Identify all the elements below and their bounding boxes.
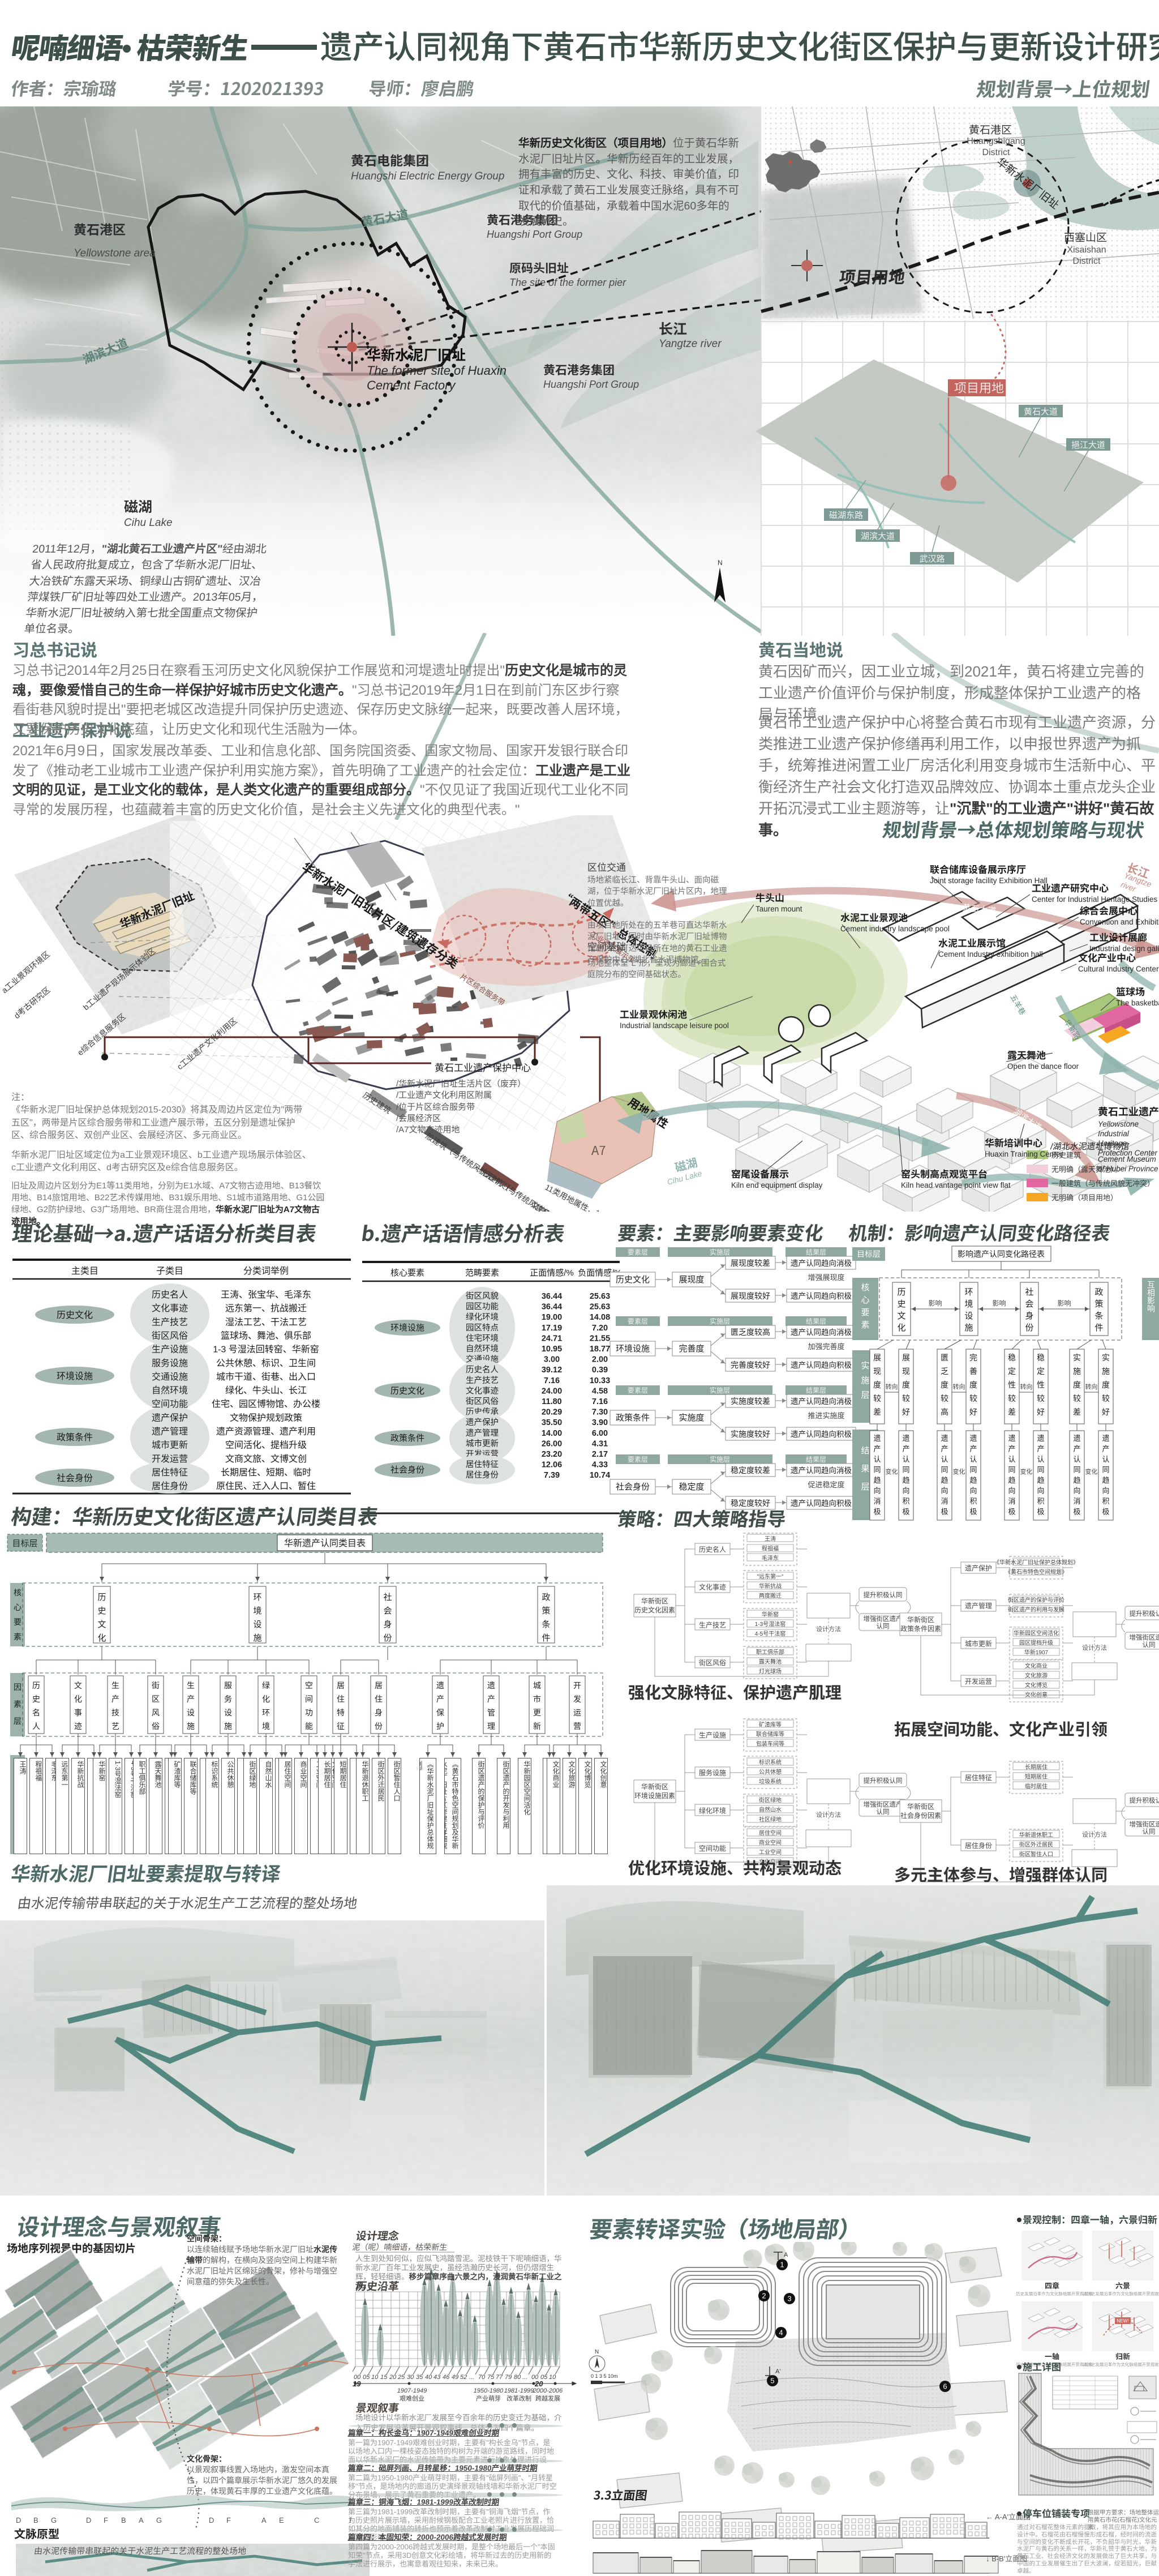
svg-text:实施度较好: 实施度较好 — [731, 1430, 770, 1439]
svg-text:史: 史 — [97, 1606, 106, 1616]
svg-text:艺: 艺 — [111, 1722, 119, 1731]
svg-text:迹: 迹 — [74, 1722, 82, 1731]
svg-text:遗: 遗 — [873, 1434, 881, 1443]
svg-text:心: 心 — [861, 1295, 869, 1305]
svg-text:遗产认同趋向积极: 遗产认同趋向积极 — [791, 1361, 852, 1370]
svg-text:2: 2 — [762, 2292, 766, 2300]
svg-text:城: 城 — [533, 1681, 541, 1690]
svg-text:影响: 影响 — [1057, 1299, 1071, 1307]
svg-text:《华新水泥厂旧址保护总体规划》: 《华新水泥厂旧址保护总体规划》 — [994, 1559, 1079, 1566]
svg-text:70: 70 — [478, 2374, 486, 2381]
svg-text:19.00: 19.00 — [542, 1313, 562, 1322]
svg-text:文: 文 — [97, 1620, 106, 1629]
svg-text:城市干道、街巷、出入口: 城市干道、街巷、出入口 — [216, 1372, 316, 1382]
svg-text:完善度较好: 完善度较好 — [731, 1360, 770, 1370]
svg-text:c工业遗产文化利用区: c工业遗产文化利用区 — [175, 1016, 239, 1072]
svg-text:两度搬迁: 两度搬迁 — [759, 1592, 782, 1599]
svg-text:社会身份因素: 社会身份因素 — [900, 1811, 941, 1820]
svg-text:向: 向 — [873, 1487, 881, 1495]
svg-text:...: ... — [469, 2374, 474, 2381]
svg-text:原住民、迁入人口、暂住: 原住民、迁入人口、暂住 — [216, 1481, 316, 1491]
svg-text:街区遗产的保护与评价: 街区遗产的保护与评价 — [1008, 1597, 1064, 1604]
svg-text:完善度: 完善度 — [679, 1344, 704, 1354]
svg-text:10: 10 — [549, 2374, 556, 2381]
svg-text:积: 积 — [1037, 1497, 1044, 1505]
svg-text:度: 度 — [969, 1380, 977, 1389]
svg-text:遗产保护: 遗产保护 — [466, 1418, 499, 1427]
svg-text:产: 产 — [1102, 1445, 1109, 1453]
svg-text:增强街区遗产: 增强街区遗产 — [1130, 1820, 1159, 1828]
svg-text:施: 施 — [861, 1376, 869, 1385]
svg-text:华新街区: 华新街区 — [907, 1615, 934, 1624]
svg-text:遗: 遗 — [487, 1681, 495, 1690]
svg-text:篮球场、舞池、俱乐部: 篮球场、舞池、俱乐部 — [221, 1330, 311, 1341]
svg-text:遗产保护: 遗产保护 — [152, 1413, 188, 1423]
svg-text:稳: 稳 — [1008, 1353, 1016, 1362]
svg-text:居住特征: 居住特征 — [466, 1460, 499, 1470]
svg-text:认: 认 — [1073, 1455, 1080, 1464]
svg-text:素: 素 — [14, 1700, 22, 1709]
svg-text:街区绿地: 街区绿地 — [759, 1796, 782, 1804]
svg-text:历史建筑: 历史建筑 — [361, 1090, 393, 1115]
svg-text:王涛、张宝华、毛泽东: 王涛、张宝华、毛泽东 — [221, 1290, 311, 1300]
svg-text:境: 境 — [253, 1606, 261, 1616]
svg-text:湿法工艺、干法工艺: 湿法工艺、干法工艺 — [225, 1317, 307, 1327]
svg-text:遗: 遗 — [1073, 1434, 1080, 1443]
svg-text:同: 同 — [1037, 1466, 1044, 1474]
svg-text:矿渣库等: 矿渣库等 — [759, 1721, 782, 1728]
svg-text:俗: 俗 — [152, 1722, 160, 1731]
svg-text:空: 空 — [305, 1681, 313, 1690]
svg-text:1950-1980: 1950-1980 — [474, 2387, 504, 2394]
svg-text:展现度: 展现度 — [679, 1275, 704, 1285]
svg-text:"远东第一": "远东第一" — [757, 1573, 784, 1580]
svg-text:理: 理 — [487, 1722, 495, 1731]
svg-text:4: 4 — [779, 2329, 783, 2337]
svg-text:同: 同 — [941, 1466, 948, 1474]
svg-text:影响: 影响 — [992, 1299, 1006, 1307]
svg-text:湖滨大道: 湖滨大道 — [861, 532, 895, 541]
svg-text:身: 身 — [1025, 1311, 1033, 1321]
svg-text:遗: 遗 — [1037, 1434, 1044, 1443]
svg-text:77: 77 — [496, 2374, 503, 2381]
svg-text:住: 住 — [337, 1694, 345, 1704]
svg-text:认同: 认同 — [877, 1808, 890, 1816]
svg-text:稳定度较差: 稳定度较差 — [731, 1466, 770, 1475]
svg-text:份: 份 — [1025, 1323, 1033, 1333]
svg-text:人: 人 — [32, 1722, 40, 1731]
svg-text:产: 产 — [902, 1445, 909, 1453]
svg-text:生: 生 — [187, 1681, 195, 1690]
svg-text:2000-2006: 2000-2006 — [533, 2387, 563, 2394]
svg-text:趋: 趋 — [1037, 1476, 1044, 1484]
svg-text:果: 果 — [861, 1464, 869, 1474]
svg-text:交通设施: 交通设施 — [152, 1372, 188, 1382]
svg-text:1907-1949: 1907-1949 — [397, 2387, 427, 2394]
svg-text:目标层: 目标层 — [12, 1539, 37, 1548]
svg-text:要素层: 要素层 — [628, 1387, 648, 1394]
svg-text:灯光球场: 灯光球场 — [759, 1668, 782, 1675]
svg-text:较: 较 — [1102, 1394, 1110, 1403]
svg-text:b工业遗产现场展示体验区: b工业遗产现场展示体验区 — [81, 946, 157, 1012]
svg-text:护: 护 — [436, 1722, 444, 1731]
svg-text:10: 10 — [371, 2374, 379, 2381]
svg-text:居: 居 — [375, 1681, 383, 1690]
svg-text:遗: 遗 — [436, 1681, 444, 1690]
svg-text:稳: 稳 — [1037, 1353, 1045, 1362]
svg-text:14.00: 14.00 — [542, 1429, 562, 1438]
svg-text:1981-1999: 1981-1999 — [504, 2387, 534, 2394]
svg-text:要素层: 要素层 — [628, 1248, 648, 1256]
svg-text:39.12: 39.12 — [542, 1366, 562, 1375]
svg-text:遗产认同趋向消极: 遗产认同趋向消极 — [791, 1466, 852, 1475]
svg-text:环: 环 — [964, 1287, 973, 1297]
svg-text:街: 街 — [152, 1681, 160, 1690]
svg-text:身: 身 — [383, 1620, 392, 1629]
svg-text:36.44: 36.44 — [542, 1292, 562, 1301]
svg-text:实施层: 实施层 — [710, 1386, 730, 1394]
svg-text:史: 史 — [897, 1299, 905, 1309]
svg-text:转向: 转向 — [1020, 1383, 1033, 1390]
svg-text:趋: 趋 — [969, 1476, 977, 1484]
svg-text:社: 社 — [1025, 1287, 1033, 1297]
svg-text:实施层: 实施层 — [710, 1248, 730, 1256]
svg-text:趋: 趋 — [1102, 1476, 1109, 1484]
svg-text:城市更新: 城市更新 — [965, 1639, 992, 1648]
svg-text:11.80: 11.80 — [542, 1397, 562, 1406]
svg-text:片区综合服务带: 片区综合服务带 — [458, 972, 506, 1007]
svg-text:3.00: 3.00 — [544, 1355, 560, 1364]
svg-text:华新街区: 华新街区 — [641, 1782, 668, 1791]
svg-text:提升积极认同: 提升积极认同 — [1130, 1610, 1159, 1618]
svg-text:结: 结 — [861, 1446, 869, 1456]
svg-text:d考古研究区: d考古研究区 — [12, 985, 52, 1020]
svg-text:NEW!: NEW! — [1117, 2318, 1129, 2323]
svg-text:能: 能 — [305, 1722, 313, 1731]
svg-text:展: 展 — [902, 1353, 910, 1362]
svg-text:差: 差 — [1073, 1407, 1081, 1417]
svg-text:遗产保护: 遗产保护 — [965, 1564, 992, 1572]
svg-text:要素层: 要素层 — [628, 1317, 648, 1325]
svg-text:遗: 遗 — [1008, 1434, 1015, 1443]
svg-text:环: 环 — [253, 1593, 261, 1602]
svg-text:标识系统: 标识系统 — [759, 1758, 782, 1766]
svg-text:新: 新 — [533, 1722, 541, 1731]
svg-text:联合储库等: 联合储库等 — [756, 1731, 784, 1738]
svg-text:职工俱乐部: 职工俱乐部 — [756, 1649, 784, 1656]
svg-text:定: 定 — [1037, 1367, 1045, 1376]
svg-text:26.00: 26.00 — [542, 1439, 562, 1448]
svg-text:居住特征: 居住特征 — [965, 1773, 992, 1782]
svg-text:向: 向 — [902, 1487, 909, 1495]
svg-text:空间活化、提档升级: 空间活化、提档升级 — [225, 1440, 307, 1450]
svg-text:80: 80 — [514, 2374, 521, 2381]
svg-text:社: 社 — [383, 1593, 392, 1602]
svg-text:提升积极认同: 提升积极认同 — [864, 1777, 903, 1785]
svg-text:...: ... — [522, 2374, 527, 2381]
svg-text:王涛: 王涛 — [765, 1535, 776, 1543]
svg-text:泥（呢）喃细语，枯荣新生: 泥（呢）喃细语，枯荣新生 — [353, 2243, 448, 2252]
svg-text:23.20: 23.20 — [542, 1450, 562, 1459]
svg-text:遗产管理: 遗产管理 — [152, 1427, 188, 1437]
svg-text:17.19: 17.19 — [542, 1324, 562, 1333]
svg-text:较: 较 — [1073, 1394, 1081, 1403]
svg-text:华新抗战: 华新抗战 — [759, 1582, 782, 1590]
svg-text:条: 条 — [1094, 1311, 1103, 1321]
svg-text:主类目: 主类目 — [71, 1266, 98, 1276]
svg-text:份: 份 — [375, 1722, 383, 1731]
svg-text:施: 施 — [1073, 1367, 1081, 1376]
svg-text:向: 向 — [1073, 1487, 1080, 1495]
svg-text:保: 保 — [436, 1708, 444, 1717]
svg-text:性: 性 — [1008, 1380, 1016, 1389]
svg-text:武汉路: 武汉路 — [919, 554, 945, 564]
svg-text:46: 46 — [443, 2374, 450, 2381]
svg-text:性: 性 — [1037, 1380, 1045, 1389]
svg-text:范畴要素: 范畴要素 — [465, 1268, 499, 1278]
svg-text:社会身份: 社会身份 — [57, 1473, 93, 1483]
svg-text:策: 策 — [1094, 1299, 1103, 1309]
svg-text:展现度较差: 展现度较差 — [731, 1259, 770, 1268]
svg-text:文: 文 — [897, 1311, 905, 1321]
svg-text:1-3号湿法窑: 1-3号湿法窑 — [755, 1620, 785, 1628]
svg-text:较: 较 — [941, 1394, 948, 1403]
svg-text:黄石大道: 黄石大道 — [1024, 407, 1058, 417]
svg-text:会: 会 — [383, 1606, 392, 1616]
svg-text:居: 居 — [337, 1681, 345, 1690]
svg-text:e综合信息服务区: e综合信息服务区 — [76, 1012, 127, 1057]
svg-text:历史名人: 历史名人 — [466, 1365, 499, 1375]
svg-text:名: 名 — [32, 1708, 40, 1717]
svg-text:遗产认同趋向消极: 遗产认同趋向消极 — [791, 1397, 852, 1406]
svg-text:管: 管 — [487, 1708, 495, 1717]
svg-text:6: 6 — [943, 2382, 947, 2391]
svg-text:社会身份: 社会身份 — [616, 1482, 650, 1492]
svg-text:结果层: 结果层 — [806, 1456, 826, 1464]
svg-text:化: 化 — [74, 1694, 82, 1704]
svg-text:生产技艺: 生产技艺 — [152, 1317, 188, 1327]
svg-text:生产技艺: 生产技艺 — [466, 1376, 499, 1385]
svg-text:分类词举例: 分类词举例 — [243, 1266, 289, 1276]
svg-text:较: 较 — [1037, 1394, 1045, 1403]
svg-text:趋: 趋 — [941, 1476, 948, 1484]
svg-text:稳定度: 稳定度 — [679, 1482, 704, 1492]
svg-text:遗: 遗 — [902, 1434, 909, 1443]
svg-text:同: 同 — [1102, 1466, 1109, 1474]
svg-text:服: 服 — [224, 1681, 232, 1690]
svg-text:住宅、园区博物馆、办公楼: 住宅、园区博物馆、办公楼 — [212, 1399, 320, 1409]
svg-text:变化: 变化 — [886, 1467, 898, 1475]
svg-text:以历史发展沿革作为文化脉络展开景观故事: 以历史发展沿革作为文化脉络展开景观故事 — [1016, 2291, 1093, 2296]
svg-text:影响遗产认同变化路径表: 影响遗产认同变化路径表 — [958, 1250, 1045, 1259]
svg-text:文化事迹: 文化事迹 — [466, 1386, 499, 1396]
svg-text:以历史发展沿革作为文化脉络展开景观故事: 以历史发展沿革作为文化脉络展开景观故事 — [1083, 2361, 1159, 2367]
svg-text:文: 文 — [74, 1681, 82, 1690]
svg-text:较: 较 — [969, 1394, 977, 1403]
svg-text:75: 75 — [487, 2374, 495, 2381]
svg-text:华新1907: 华新1907 — [1024, 1649, 1049, 1656]
svg-text:匮: 匮 — [941, 1353, 948, 1362]
svg-text:核心要素: 核心要素 — [390, 1268, 424, 1278]
svg-text:完: 完 — [969, 1353, 977, 1362]
svg-text:征: 征 — [337, 1722, 345, 1731]
svg-text:开: 开 — [573, 1681, 581, 1690]
svg-text:短期居住: 短期居住 — [1025, 1773, 1048, 1781]
svg-text:结果层: 结果层 — [806, 1248, 826, 1256]
svg-text:遗产认同趋向积极: 遗产认同趋向积极 — [791, 1430, 852, 1439]
svg-text:A': A' — [775, 2368, 780, 2375]
svg-text:城市更新: 城市更新 — [466, 1439, 499, 1448]
svg-text:历史文化: 历史文化 — [57, 1310, 93, 1320]
svg-text:遗产认同趋向消极: 遗产认同趋向消极 — [791, 1259, 852, 1268]
svg-text:事: 事 — [74, 1708, 82, 1717]
svg-text:实施度较差: 实施度较差 — [731, 1397, 770, 1406]
svg-text:环境设施因素: 环境设施因素 — [634, 1791, 675, 1800]
svg-text:影响: 影响 — [928, 1299, 942, 1307]
svg-text:产: 产 — [1008, 1445, 1015, 1453]
svg-text:消: 消 — [1073, 1497, 1080, 1505]
svg-text:产: 产 — [111, 1694, 119, 1704]
svg-text:实施层: 实施层 — [710, 1317, 730, 1325]
svg-text:极: 极 — [1037, 1508, 1044, 1516]
svg-text:认: 认 — [1008, 1455, 1015, 1464]
svg-text:好: 好 — [969, 1407, 977, 1417]
svg-text:营: 营 — [573, 1722, 581, 1731]
svg-text:要: 要 — [861, 1308, 869, 1317]
svg-text:20: 20 — [389, 2374, 397, 2381]
svg-text:风: 风 — [152, 1708, 160, 1717]
svg-text:《黄石市特色空间规划》: 《黄石市特色空间规划》 — [1005, 1568, 1067, 1576]
svg-text:磁湖东路: 磁湖东路 — [829, 511, 863, 520]
svg-text:街区外迁居民: 街区外迁居民 — [1019, 1841, 1053, 1848]
svg-text:认: 认 — [1102, 1455, 1109, 1464]
svg-text:向: 向 — [1008, 1487, 1015, 1495]
svg-text:工业空间: 工业空间 — [759, 1848, 782, 1856]
svg-text:乏: 乏 — [941, 1367, 948, 1376]
svg-text:极: 极 — [1008, 1508, 1015, 1516]
svg-text:园区功能: 园区功能 — [466, 1302, 499, 1312]
svg-text:街区风俗: 街区风俗 — [152, 1330, 188, 1341]
svg-text:条: 条 — [542, 1620, 550, 1629]
svg-text:策: 策 — [542, 1606, 550, 1616]
svg-text:生产设施: 生产设施 — [699, 1731, 726, 1739]
svg-text:变化: 变化 — [953, 1467, 965, 1475]
svg-text:度: 度 — [902, 1380, 910, 1389]
svg-text:增强街区遗产: 增强街区遗产 — [1130, 1633, 1159, 1641]
svg-text:15: 15 — [380, 2374, 388, 2381]
svg-text:务: 务 — [224, 1694, 232, 1704]
svg-text:结果层: 结果层 — [806, 1387, 826, 1394]
svg-text:件: 件 — [542, 1633, 550, 1643]
svg-text:目标层: 目标层 — [857, 1250, 881, 1259]
svg-text:实施度: 实施度 — [679, 1413, 704, 1423]
svg-text:结果层: 结果层 — [806, 1317, 826, 1325]
svg-text:华新窑: 华新窑 — [762, 1611, 779, 1618]
svg-text:12.06: 12.06 — [542, 1461, 562, 1470]
svg-text:0 1 3 5 10m: 0 1 3 5 10m — [591, 2373, 618, 2379]
svg-text:转向: 转向 — [953, 1383, 965, 1390]
svg-text:变化: 变化 — [1085, 1467, 1098, 1475]
svg-text:生产设施: 生产设施 — [152, 1345, 188, 1355]
svg-text:开发运营: 开发运营 — [965, 1677, 992, 1685]
svg-text:善: 善 — [969, 1367, 977, 1376]
svg-text:同: 同 — [969, 1466, 977, 1474]
svg-text:华新街区: 华新街区 — [907, 1802, 934, 1811]
svg-text:化: 化 — [97, 1633, 106, 1643]
svg-text:遗产认同趋向消极: 遗产认同趋向消极 — [791, 1328, 852, 1337]
svg-text:空间功能: 空间功能 — [152, 1399, 188, 1409]
svg-text:包装车间等: 包装车间等 — [756, 1740, 784, 1748]
svg-text:10.95: 10.95 — [542, 1345, 562, 1354]
svg-text:份: 份 — [383, 1633, 392, 1643]
svg-text:政: 政 — [542, 1593, 550, 1602]
svg-text:向: 向 — [941, 1487, 948, 1495]
svg-text:环: 环 — [262, 1708, 270, 1717]
svg-text:差: 差 — [1008, 1407, 1016, 1417]
svg-text:产: 产 — [487, 1694, 495, 1704]
svg-text:促进稳定度: 促进稳定度 — [808, 1480, 844, 1489]
svg-text:3: 3 — [787, 2295, 791, 2303]
svg-text:产: 产 — [1037, 1445, 1044, 1453]
svg-text:极: 极 — [1102, 1508, 1109, 1516]
svg-text:5: 5 — [770, 2377, 774, 2385]
svg-text:趋: 趋 — [1008, 1476, 1015, 1484]
svg-text:认: 认 — [1037, 1455, 1044, 1464]
svg-text:政策条件: 政策条件 — [616, 1413, 650, 1423]
svg-text:转向: 转向 — [1085, 1383, 1098, 1390]
svg-text:N: N — [595, 2349, 599, 2355]
svg-text:较: 较 — [873, 1394, 881, 1403]
svg-text:长期居住、短期、临时: 长期居住、短期、临时 — [221, 1467, 311, 1478]
svg-text:居住身份: 居住身份 — [466, 1470, 499, 1480]
svg-text:同: 同 — [1073, 1466, 1080, 1474]
svg-text:核: 核 — [14, 1588, 22, 1597]
svg-text:华新街区: 华新街区 — [641, 1597, 668, 1605]
svg-text:居住特征: 居住特征 — [152, 1467, 188, 1478]
svg-text:公共休憩: 公共休憩 — [759, 1768, 782, 1775]
svg-text:趋: 趋 — [1073, 1476, 1080, 1484]
svg-text:认同: 认同 — [877, 1623, 890, 1630]
svg-text:改革改制: 改革改制 — [506, 2394, 531, 2402]
svg-text:环境设施: 环境设施 — [57, 1371, 93, 1381]
svg-text:技: 技 — [111, 1708, 119, 1717]
svg-text:长期居住: 长期居住 — [1025, 1764, 1048, 1771]
svg-text:认同: 认同 — [1143, 1828, 1156, 1835]
svg-text:认同: 认同 — [1143, 1641, 1156, 1649]
svg-text:认: 认 — [969, 1455, 977, 1464]
svg-text:提升积极认同: 提升积极认同 — [864, 1591, 903, 1599]
svg-text:匮乏度较高: 匮乏度较高 — [731, 1328, 770, 1337]
svg-text:艰难创业: 艰难创业 — [400, 2395, 424, 2402]
svg-text:向: 向 — [969, 1487, 977, 1495]
svg-text:特: 特 — [337, 1708, 345, 1717]
svg-text:4-5号干法窑: 4-5号干法窑 — [755, 1630, 785, 1637]
svg-text:增强街区遗产: 增强街区遗产 — [864, 1615, 903, 1623]
svg-text:1: 1 — [780, 2261, 784, 2269]
svg-text:推进实施度: 推进实施度 — [808, 1411, 844, 1420]
svg-text:素: 素 — [861, 1320, 869, 1330]
svg-text:认: 认 — [941, 1455, 948, 1464]
svg-text:化: 化 — [897, 1323, 905, 1333]
svg-text:度: 度 — [1073, 1380, 1081, 1389]
svg-text:极: 极 — [1073, 1508, 1080, 1516]
svg-text:文化事迹: 文化事迹 — [699, 1583, 726, 1591]
svg-text:因: 因 — [14, 1683, 22, 1692]
svg-text:垃圾系统: 垃圾系统 — [759, 1778, 782, 1785]
svg-text:施: 施 — [187, 1722, 195, 1731]
svg-text:A: A — [784, 2252, 788, 2258]
svg-text:街区风俗: 街区风俗 — [699, 1659, 726, 1667]
